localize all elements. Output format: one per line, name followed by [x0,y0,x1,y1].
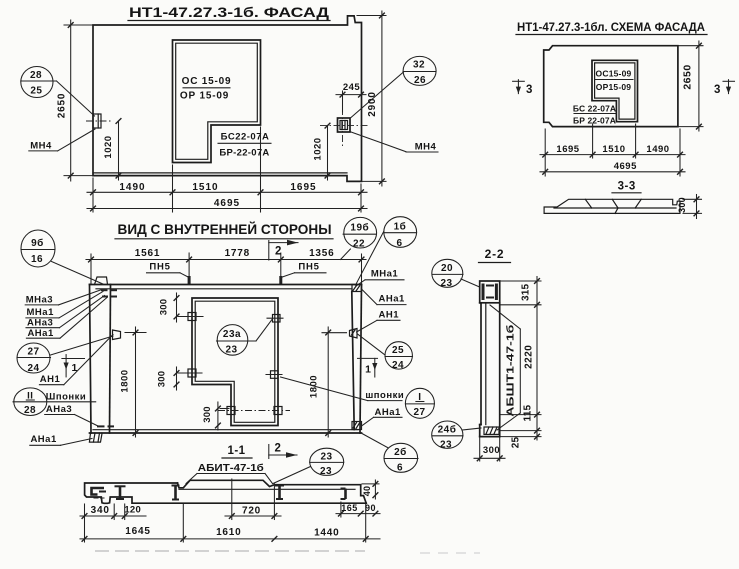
svg-text:НТ1-47.27.3-1бл. СХЕМА ФАСАДА: НТ1-47.27.3-1бл. СХЕМА ФАСАДА [517,22,705,34]
svg-text:300: 300 [202,406,213,422]
svg-text:МН4: МН4 [30,140,52,151]
svg-text:БР 22-07А: БР 22-07А [573,116,616,126]
svg-text:3: 3 [714,84,721,96]
svg-text:ОР15-09: ОР15-09 [596,82,631,92]
svg-text:ОС15-09: ОС15-09 [596,69,632,79]
svg-text:АН1: АН1 [40,374,61,385]
svg-text:22: 22 [353,239,365,250]
svg-text:2: 2 [275,443,282,455]
svg-text:245: 245 [343,82,361,93]
svg-text:1695: 1695 [556,144,579,155]
svg-text:300: 300 [483,445,500,456]
svg-text:24: 24 [392,360,404,371]
svg-text:40: 40 [362,486,372,496]
svg-text:24б: 24б [438,424,457,436]
svg-text:МН4: МН4 [415,142,437,153]
svg-text:300: 300 [159,299,170,315]
svg-text:МНа1: МНа1 [371,269,399,280]
svg-text:1: 1 [365,364,371,376]
svg-text:АНа1: АНа1 [27,328,54,339]
svg-text:2650: 2650 [57,93,68,118]
svg-text:1561: 1561 [135,248,160,259]
svg-text:1490: 1490 [646,144,669,155]
svg-text:АНа3: АНа3 [27,317,53,328]
svg-text:1356: 1356 [309,248,334,259]
svg-text:340: 340 [91,505,110,516]
svg-text:9б: 9б [31,237,44,249]
svg-text:ОР 15-09: ОР 15-09 [180,91,229,102]
svg-text:АНа3: АНа3 [46,404,72,415]
svg-text:2б: 2б [394,446,407,458]
svg-text:ПН5: ПН5 [149,262,170,273]
svg-text:БС 22-07А: БС 22-07А [573,104,616,114]
svg-text:300: 300 [677,197,687,213]
svg-text:27: 27 [413,407,425,418]
svg-text:1-1: 1-1 [227,445,245,457]
svg-text:АНа1: АНа1 [379,294,406,305]
svg-text:32: 32 [413,60,425,71]
svg-text:АБШТ1-47-1б: АБШТ1-47-1б [504,324,516,417]
svg-text:1020: 1020 [313,137,324,160]
svg-text:Шпонки: Шпонки [46,391,86,402]
svg-text:25: 25 [30,86,42,97]
svg-text:27: 27 [27,346,39,357]
svg-text:АН1: АН1 [379,309,400,320]
svg-text:23: 23 [320,466,332,477]
svg-text:1: 1 [72,362,78,374]
svg-text:2650: 2650 [682,64,694,89]
svg-text:23а: 23а [223,329,241,340]
svg-text:1800: 1800 [119,369,130,392]
svg-text:23: 23 [225,345,237,356]
svg-text:АНа1: АНа1 [30,434,57,445]
svg-text:3-3: 3-3 [618,181,636,193]
svg-text:23: 23 [320,452,332,463]
svg-text:2: 2 [275,246,282,258]
svg-text:23: 23 [440,278,452,289]
svg-text:АБИТ-47-1б: АБИТ-47-1б [198,462,265,474]
svg-text:ВИД С ВНУТРЕННЕЙ СТОРОНЫ: ВИД С ВНУТРЕННЕЙ СТОРОНЫ [118,222,332,237]
svg-text:720: 720 [242,506,261,517]
svg-text:1695: 1695 [290,182,316,193]
svg-text:28: 28 [24,405,36,416]
svg-text:26: 26 [414,75,426,86]
svg-text:28: 28 [30,70,42,81]
svg-text:АНа1: АНа1 [375,407,402,418]
svg-text:1б: 1б [394,221,407,233]
svg-text:115: 115 [522,404,533,421]
svg-text:1610: 1610 [216,527,241,538]
svg-text:24: 24 [27,363,39,374]
svg-text:1510: 1510 [602,144,625,155]
svg-text:1510: 1510 [192,182,218,193]
svg-text:2-2: 2-2 [485,247,505,261]
svg-text:1490: 1490 [119,182,145,193]
svg-text:90: 90 [365,503,376,513]
svg-text:1778: 1778 [225,248,250,259]
svg-text:БР-22-07А: БР-22-07А [219,148,269,159]
svg-text:25: 25 [510,437,521,449]
svg-text:НТ1-47.27.3-1б. ФАСАД: НТ1-47.27.3-1б. ФАСАД [129,5,329,20]
svg-text:1020: 1020 [103,135,114,158]
svg-text:2220: 2220 [523,345,534,369]
svg-text:БС22-07А: БС22-07А [221,132,270,143]
svg-text:165: 165 [341,503,358,513]
svg-text:16: 16 [31,254,43,265]
svg-text:ПН5: ПН5 [298,262,319,273]
svg-text:23: 23 [440,440,452,451]
svg-text:19б: 19б [350,222,369,234]
svg-text:4695: 4695 [614,161,637,172]
svg-text:315: 315 [520,284,531,302]
svg-text:3: 3 [526,84,533,96]
svg-text:1440: 1440 [314,528,339,539]
svg-text:4695: 4695 [214,198,240,209]
svg-text:120: 120 [124,505,141,516]
svg-text:шпонки: шпонки [365,390,404,401]
svg-text:6: 6 [397,463,403,474]
svg-text:1645: 1645 [125,526,150,537]
svg-text:25: 25 [392,345,404,356]
svg-text:6: 6 [396,238,402,249]
svg-text:ОС 15-09: ОС 15-09 [182,76,232,87]
svg-text:МНа3: МНа3 [26,295,53,306]
svg-text:20: 20 [441,263,453,274]
svg-text:300: 300 [157,371,168,387]
